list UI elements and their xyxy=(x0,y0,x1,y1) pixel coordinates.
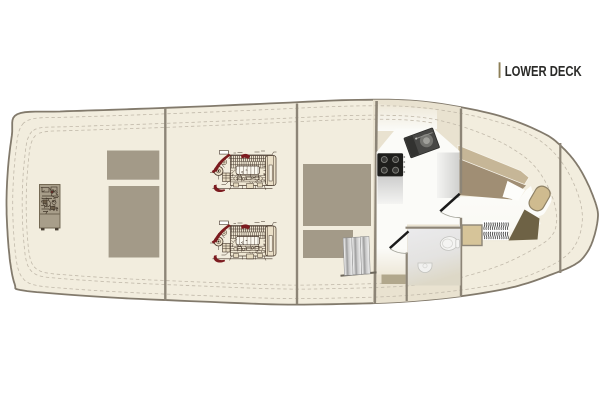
svg-text:LOWER DECK: LOWER DECK xyxy=(505,63,582,80)
